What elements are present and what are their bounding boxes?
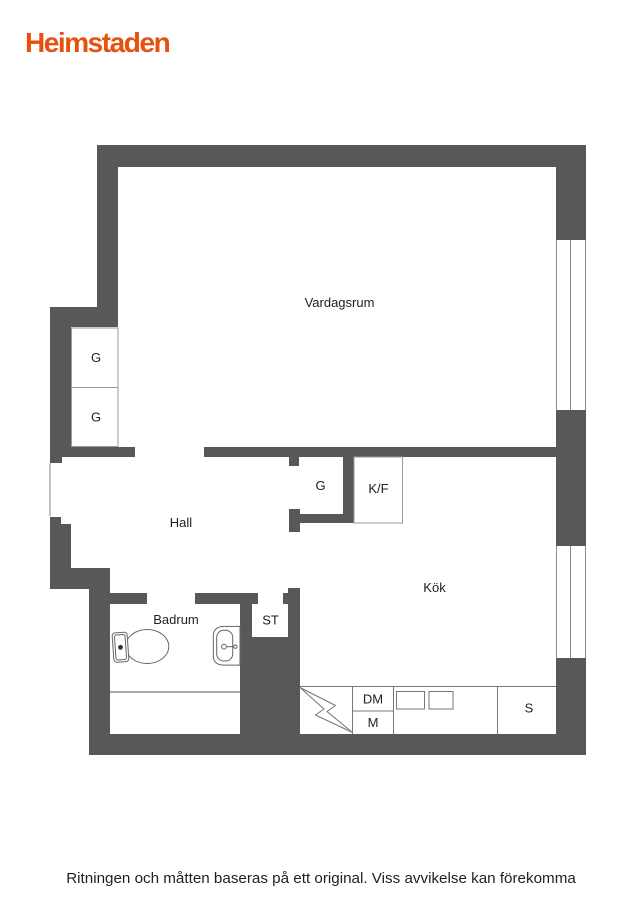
svg-text:ST: ST <box>262 613 279 628</box>
svg-text:S: S <box>525 701 534 716</box>
svg-text:DM: DM <box>363 692 383 707</box>
svg-text:Ritningen och måtten baseras p: Ritningen och måtten baseras på ett orig… <box>66 870 576 887</box>
svg-text:Kök: Kök <box>423 580 446 595</box>
svg-text:G: G <box>91 350 101 365</box>
svg-text:G: G <box>91 410 101 425</box>
svg-text:Vardagsrum: Vardagsrum <box>305 295 375 310</box>
svg-text:Hall: Hall <box>170 515 193 530</box>
svg-text:Heimstaden: Heimstaden <box>25 27 170 58</box>
svg-text:M: M <box>368 715 379 730</box>
svg-text:G: G <box>315 478 325 493</box>
svg-text:Badrum: Badrum <box>153 612 199 627</box>
svg-text:K/F: K/F <box>368 481 388 496</box>
